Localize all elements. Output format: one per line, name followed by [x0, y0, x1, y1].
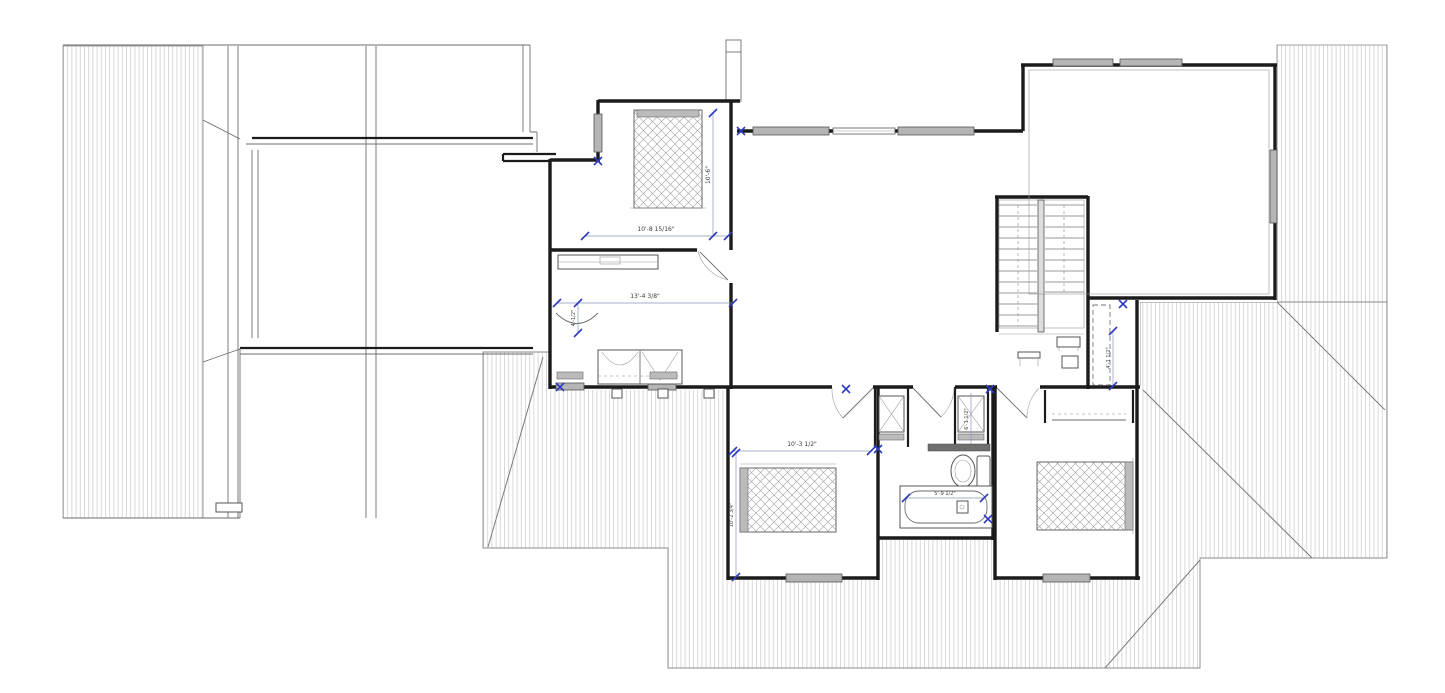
window-hall-north-2[interactable] [898, 127, 974, 135]
window-bonus-east[interactable] [1270, 150, 1277, 223]
window-hall-north-1[interactable] [753, 127, 829, 135]
roof-plane-left[interactable] [63, 46, 203, 518]
bed-headboard [1125, 462, 1133, 530]
svg-text:10'-6": 10'-6" [705, 166, 712, 184]
window-bonus-north-2[interactable] [1120, 59, 1182, 66]
bench[interactable] [1057, 337, 1080, 347]
window-sill-left [216, 503, 242, 512]
bed-headboard [740, 468, 748, 532]
svg-text:4'-1 1/2": 4'-1 1/2" [1106, 347, 1112, 368]
bed-bedroom2[interactable] [630, 110, 706, 208]
svg-text:10'-8 15/16": 10'-8 15/16" [637, 226, 674, 233]
window-bonus-north-1[interactable] [1053, 59, 1113, 66]
svg-text:6'-1 1/2": 6'-1 1/2" [964, 408, 970, 429]
chimney[interactable] [726, 40, 741, 101]
bed-headboard [637, 110, 699, 117]
shingle-hatch-upper-right [1277, 45, 1387, 302]
svg-text:13'-4 3/8": 13'-4 3/8" [630, 293, 660, 300]
svg-text:10'-3 1/2": 10'-3 1/2" [787, 441, 817, 448]
svg-text:4'-1/2": 4'-1/2" [571, 310, 577, 327]
svg-text:5'-9 1/2": 5'-9 1/2" [934, 491, 955, 497]
window-bedroom2-west[interactable] [594, 114, 602, 152]
roof-plane-upper-right[interactable] [1277, 45, 1387, 302]
window-bedroom4-south[interactable] [1043, 574, 1090, 582]
window-seat-cushion [557, 372, 583, 379]
shelf [1018, 352, 1040, 358]
shingle-hatch-left [63, 46, 203, 518]
bed-bedroom4[interactable] [1037, 458, 1133, 534]
toilet-fixture[interactable] [951, 455, 990, 487]
floor-plan-canvas: 10'-8 15/16" 10'-6" 13'-4 3/8" 4'-1/2" 1… [0, 0, 1445, 693]
window-bedroom3-south[interactable] [786, 574, 842, 582]
half-wall [928, 444, 990, 451]
bed-bedroom3[interactable] [740, 464, 836, 532]
window-seat-cushion [650, 372, 677, 379]
stool[interactable] [1062, 356, 1078, 368]
svg-text:10'-2 3/4": 10'-2 3/4" [729, 503, 735, 528]
stair-center-stringer [1038, 200, 1044, 332]
